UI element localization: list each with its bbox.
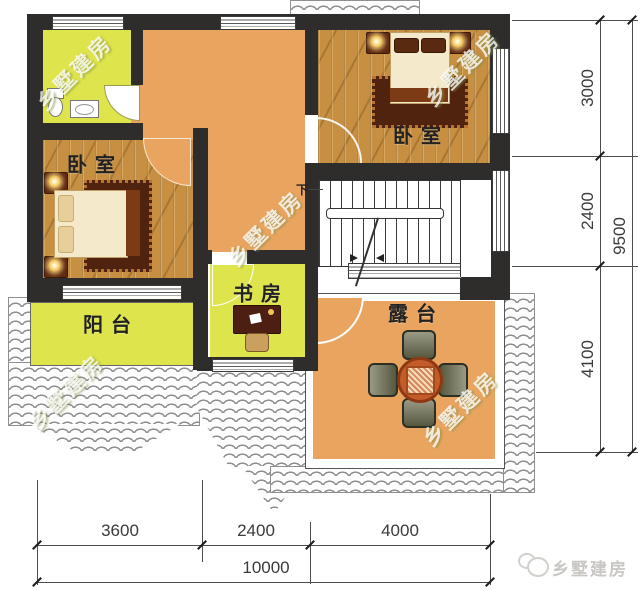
bed-foot bbox=[126, 190, 140, 256]
bedroom-right-window bbox=[492, 48, 510, 134]
terrace-chair bbox=[402, 330, 436, 360]
wall-bedroom-right-left-upper bbox=[305, 30, 318, 115]
desk-chair bbox=[245, 333, 269, 352]
dim-bottom-3600: 3600 bbox=[101, 521, 139, 541]
terrace-table-top bbox=[406, 366, 435, 395]
dim-line-right-inner bbox=[600, 20, 601, 452]
stairwell-window bbox=[492, 170, 510, 252]
hallway-window bbox=[220, 16, 296, 30]
stair-margin bbox=[460, 180, 491, 277]
dim-bottom-2400: 2400 bbox=[237, 521, 275, 541]
hallway-floor-upper bbox=[131, 30, 305, 140]
wall-bathroom-right bbox=[131, 14, 143, 85]
bedroom-left-balcony-window bbox=[62, 285, 182, 300]
room-label-bedroom-left: 卧室 bbox=[67, 149, 123, 178]
floor-plan: 下 卧室 卧室 书房 阳台 露台 乡墅建房 乡墅建房 乡墅建房 乡墅建房 乡墅建… bbox=[0, 0, 640, 590]
roof-tiles-balcony-hip bbox=[30, 424, 180, 452]
room-label-study: 书房 bbox=[233, 278, 289, 307]
stair-landing bbox=[348, 263, 462, 279]
pillow bbox=[421, 38, 446, 53]
wall-bathroom-bottom bbox=[27, 123, 143, 140]
room-label-balcony: 阳台 bbox=[83, 309, 139, 338]
extension-line bbox=[310, 522, 311, 584]
stair-handrail bbox=[326, 208, 444, 219]
stair-arrow-right bbox=[350, 254, 358, 262]
brand-logo-text: 乡墅建房 bbox=[552, 555, 628, 580]
dim-right-4100: 4100 bbox=[578, 340, 598, 378]
extension-line bbox=[202, 480, 203, 562]
wall-stairs-bottom-right bbox=[460, 277, 510, 300]
roof-tiles-below-study bbox=[197, 368, 305, 468]
brand-logo-icon bbox=[527, 557, 549, 577]
dim-line-bottom-inner bbox=[37, 545, 491, 546]
desk-lamp bbox=[268, 309, 274, 315]
bedside-lamp bbox=[48, 175, 61, 188]
pillow bbox=[58, 195, 74, 222]
extension-line bbox=[490, 494, 491, 585]
dim-right-2400: 2400 bbox=[578, 192, 598, 230]
terrace-chair bbox=[368, 363, 398, 397]
bedside-lamp bbox=[48, 259, 61, 272]
wall-corridor-stairs bbox=[305, 163, 318, 258]
stair-down-leader bbox=[309, 189, 323, 190]
pillow bbox=[394, 38, 419, 53]
sink-basin bbox=[75, 104, 94, 115]
wall-left bbox=[27, 14, 43, 302]
room-label-terrace: 露台 bbox=[388, 298, 444, 327]
wall-bedroom-right-bottom bbox=[305, 163, 510, 180]
pillow bbox=[58, 226, 74, 253]
bathroom-window bbox=[52, 16, 124, 30]
bedside-lamp bbox=[370, 35, 383, 48]
roof-tiles-terrace-right bbox=[503, 293, 535, 493]
dim-bottom-total-10000: 10000 bbox=[242, 558, 289, 578]
dim-right-total-9500: 9500 bbox=[610, 217, 630, 255]
stair-arrow-left bbox=[376, 254, 384, 262]
roof-tiles-terrace-bottom bbox=[270, 466, 535, 493]
study-window bbox=[212, 359, 294, 372]
wall-study-right bbox=[305, 250, 318, 370]
staircase bbox=[318, 180, 462, 267]
dim-bottom-4000: 4000 bbox=[381, 521, 419, 541]
extension-line bbox=[512, 156, 638, 157]
extension-line bbox=[512, 266, 638, 267]
room-label-bedroom-right: 卧室 bbox=[393, 120, 449, 149]
extension-line bbox=[512, 20, 638, 21]
extension-line bbox=[37, 480, 38, 585]
wall-study-top-a bbox=[197, 250, 212, 264]
extension-line bbox=[536, 452, 638, 453]
dim-right-3000: 3000 bbox=[578, 69, 598, 107]
dim-line-bottom-outer bbox=[37, 582, 491, 583]
wall-bedroom-left-right bbox=[193, 128, 208, 370]
dim-line-right-outer bbox=[632, 20, 633, 452]
